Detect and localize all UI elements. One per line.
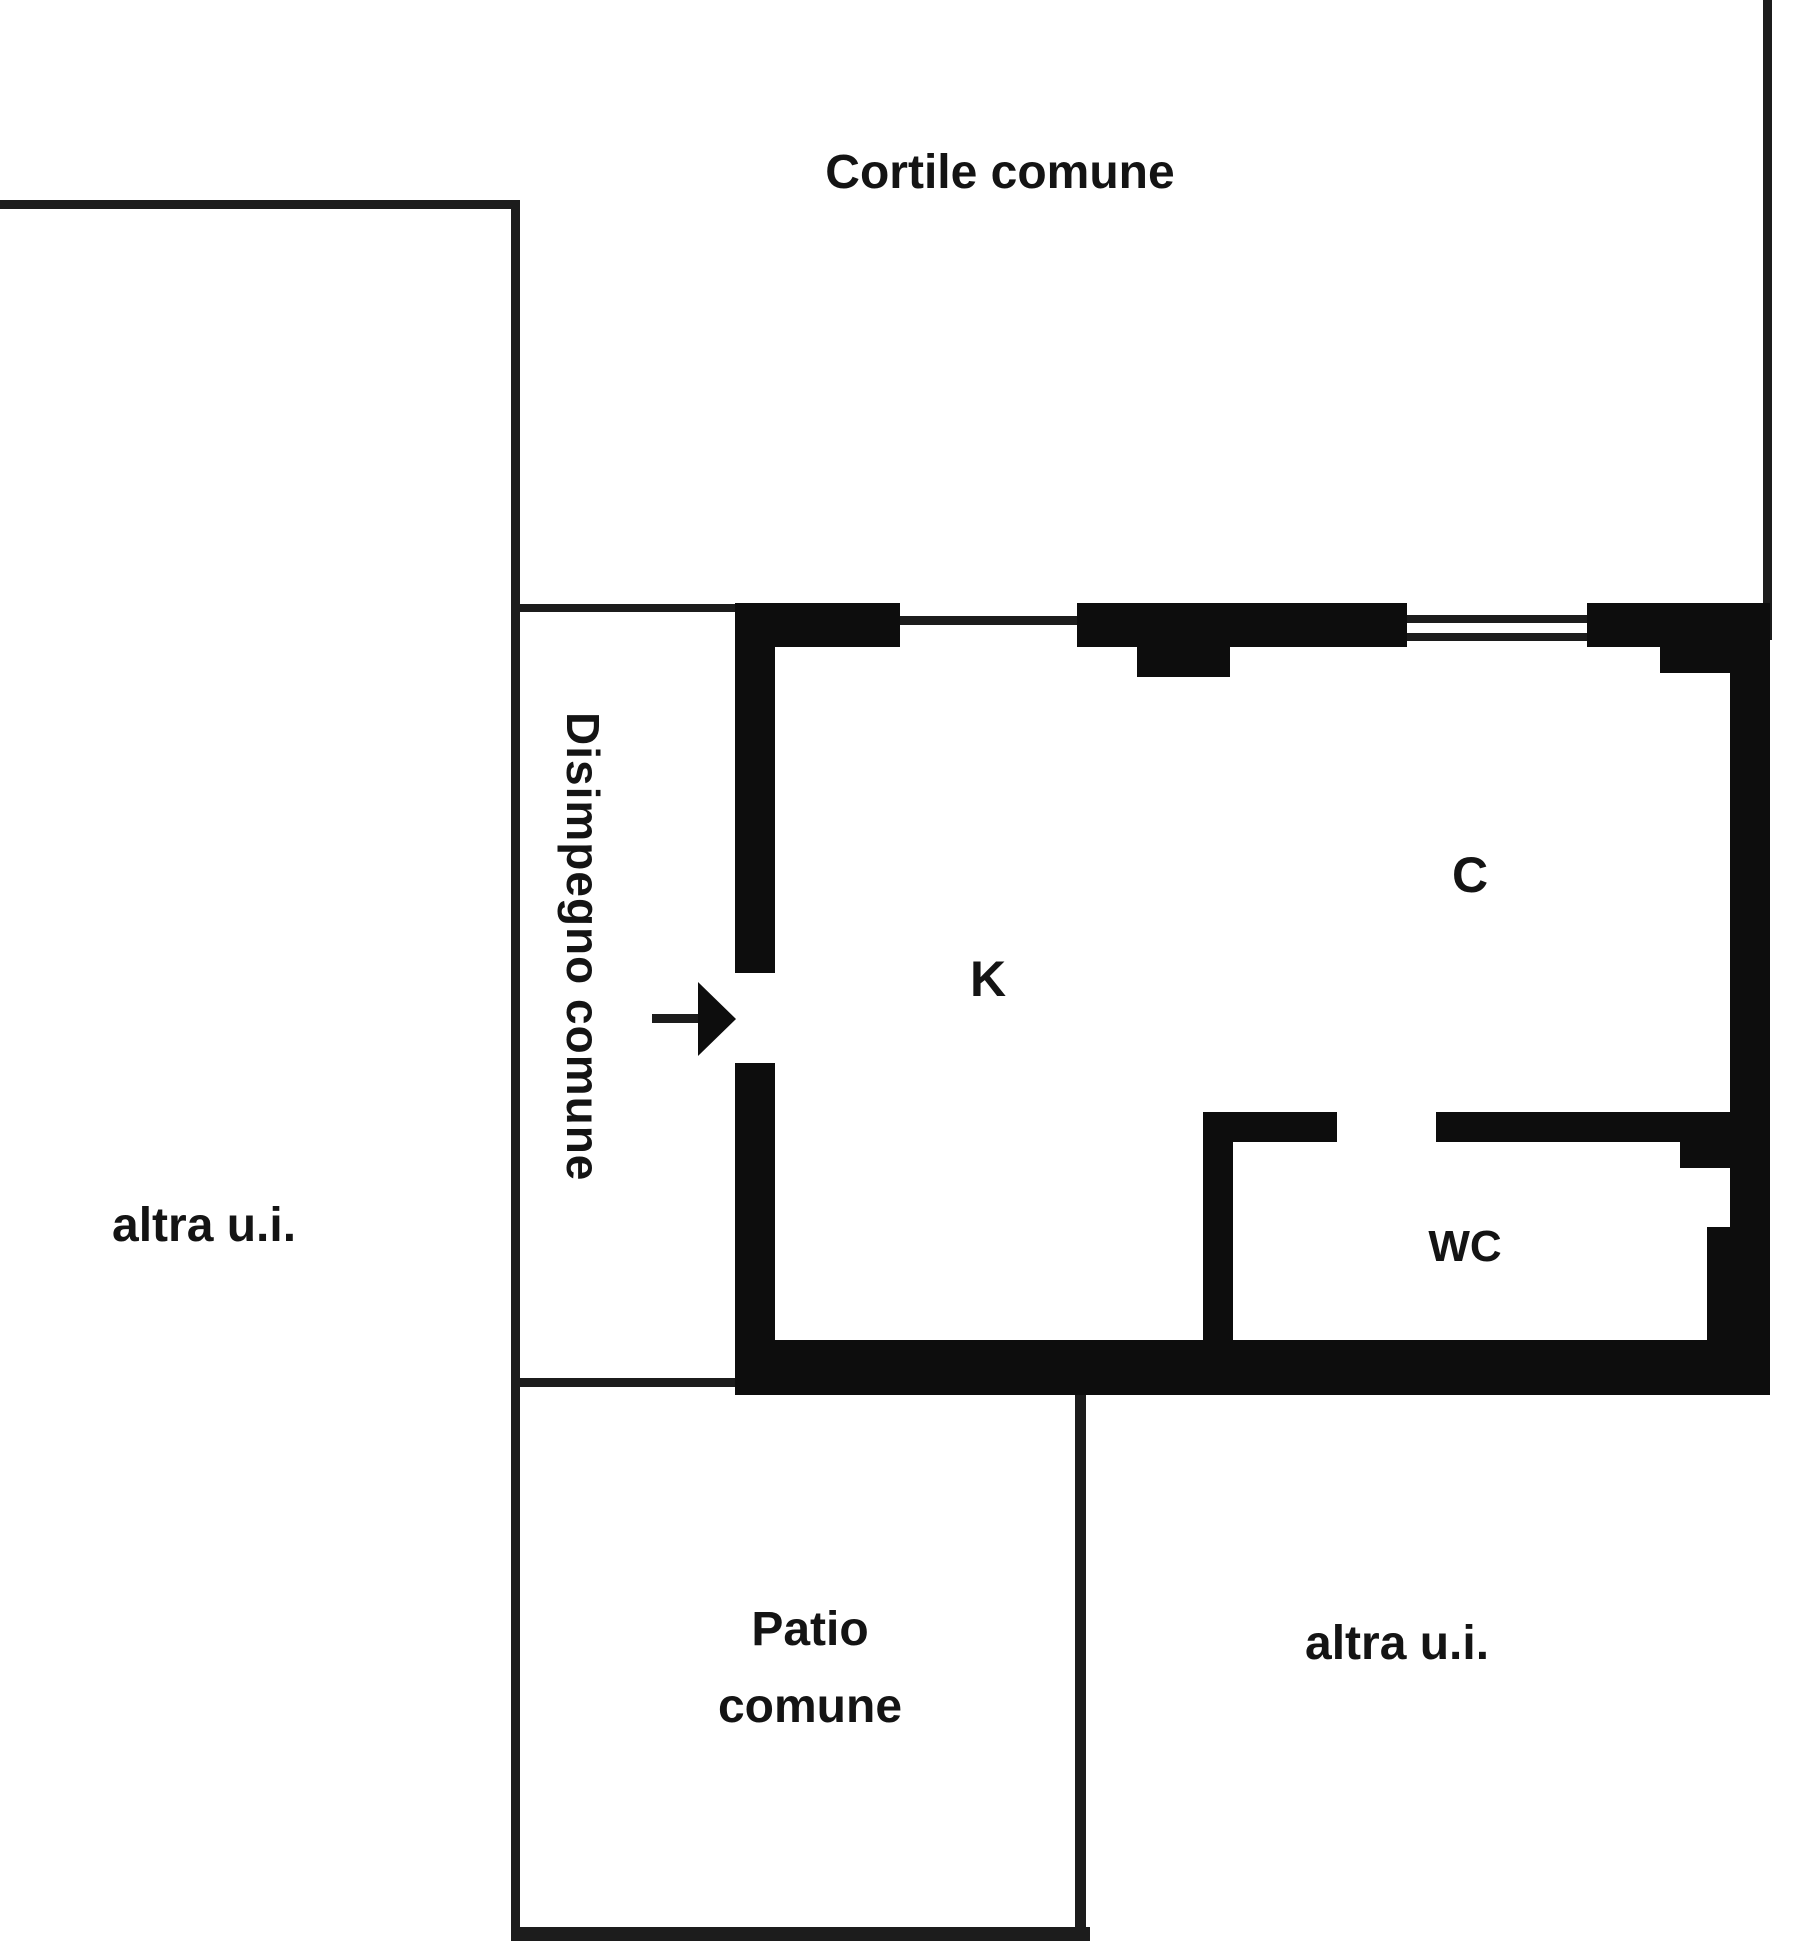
wall-left-upper — [735, 603, 775, 973]
wall-wc-corner-block — [1680, 1142, 1730, 1168]
label-room-c: C — [1452, 846, 1488, 904]
wall-wc-top-segment-b — [1436, 1112, 1730, 1142]
window-2-line-inner — [1407, 633, 1587, 641]
boundary-line-right-vertical — [1763, 0, 1772, 640]
label-wc: WC — [1400, 1222, 1530, 1272]
label-cortile-comune: Cortile comune — [760, 145, 1240, 200]
label-disimpegno-comune: Disimpegno comune — [556, 712, 610, 1332]
boundary-line-left-vertical — [511, 200, 520, 1940]
wall-top-segment-2-pier — [1137, 645, 1230, 677]
corridor-bottom-line — [511, 1378, 743, 1387]
label-patio-comune: Patio comune — [680, 1592, 940, 1746]
wall-right — [1730, 603, 1770, 1385]
boundary-line-top-left-horizontal — [0, 200, 520, 209]
patio-bottom-line — [511, 1927, 1090, 1941]
corridor-top-line — [511, 604, 743, 612]
wall-wc-top-segment-a — [1203, 1112, 1337, 1142]
floor-plan: Cortile comune altra u.i. Disimpegno com… — [0, 0, 1800, 1947]
wall-wc-left-vertical — [1203, 1113, 1233, 1343]
door-arrow-head — [698, 982, 736, 1056]
wall-left-lower — [735, 1063, 775, 1385]
window-1-line — [900, 616, 1077, 625]
door-arrow-shaft — [652, 1014, 704, 1023]
label-room-k: K — [970, 950, 1006, 1008]
patio-divider-line — [1075, 1392, 1086, 1940]
label-altra-ui-left: altra u.i. — [112, 1198, 296, 1253]
wall-bottom — [735, 1340, 1770, 1395]
label-altra-ui-bottom: altra u.i. — [1305, 1616, 1489, 1671]
window-2-line-outer — [1407, 615, 1587, 623]
wall-top-segment-2 — [1077, 603, 1407, 647]
